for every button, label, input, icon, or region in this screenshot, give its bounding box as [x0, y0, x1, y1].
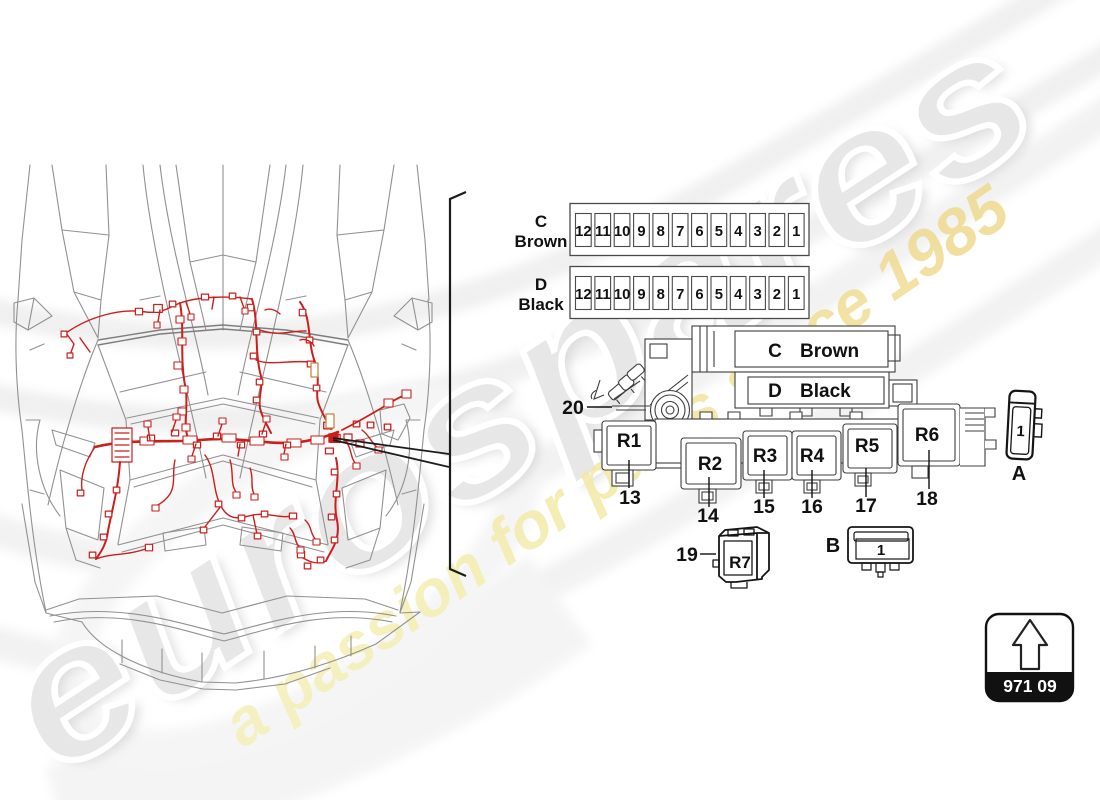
svg-text:3: 3 — [753, 224, 761, 240]
svg-text:971 09: 971 09 — [1003, 676, 1057, 696]
svg-text:6: 6 — [695, 224, 703, 240]
svg-text:16: 16 — [801, 496, 823, 518]
svg-text:5: 5 — [715, 224, 723, 240]
svg-text:11: 11 — [595, 224, 611, 240]
svg-text:9: 9 — [637, 287, 645, 303]
svg-text:8: 8 — [657, 224, 665, 240]
svg-text:1: 1 — [792, 287, 800, 303]
svg-text:R5: R5 — [855, 436, 880, 457]
svg-text:11: 11 — [595, 287, 611, 303]
svg-text:R2: R2 — [698, 454, 722, 475]
svg-text:C: C — [535, 212, 547, 231]
svg-text:R4: R4 — [800, 446, 825, 467]
svg-text:3: 3 — [753, 287, 761, 303]
svg-text:20: 20 — [562, 397, 584, 419]
svg-text:R1: R1 — [617, 431, 642, 452]
svg-text:1: 1 — [877, 542, 885, 559]
svg-text:A: A — [1012, 463, 1026, 485]
svg-text:1: 1 — [792, 224, 800, 240]
svg-text:10: 10 — [614, 224, 630, 240]
svg-text:5: 5 — [715, 287, 723, 303]
svg-text:10: 10 — [614, 287, 630, 303]
svg-text:7: 7 — [676, 224, 684, 240]
svg-text:D: D — [535, 275, 547, 294]
svg-text:6: 6 — [695, 287, 703, 303]
svg-text:4: 4 — [734, 224, 743, 240]
svg-text:13: 13 — [619, 487, 641, 509]
svg-text:Brown: Brown — [800, 341, 859, 362]
svg-text:8: 8 — [657, 287, 665, 303]
svg-text:B: B — [826, 535, 840, 557]
svg-text:15: 15 — [753, 496, 775, 518]
svg-text:9: 9 — [637, 224, 645, 240]
svg-text:C: C — [768, 341, 782, 362]
svg-text:R3: R3 — [753, 446, 777, 467]
svg-text:14: 14 — [697, 505, 719, 527]
svg-text:12: 12 — [575, 224, 591, 240]
svg-text:7: 7 — [676, 287, 684, 303]
svg-text:18: 18 — [916, 488, 938, 510]
svg-text:4: 4 — [734, 287, 743, 303]
svg-text:2: 2 — [773, 287, 781, 303]
svg-text:D: D — [768, 381, 782, 402]
svg-text:Black: Black — [800, 381, 851, 402]
svg-text:1: 1 — [1016, 423, 1025, 440]
svg-text:Black: Black — [518, 295, 564, 314]
svg-text:R7: R7 — [729, 553, 751, 572]
svg-text:19: 19 — [676, 544, 698, 566]
svg-text:2: 2 — [773, 224, 781, 240]
svg-text:12: 12 — [575, 287, 591, 303]
svg-text:Brown: Brown — [515, 232, 568, 251]
svg-text:17: 17 — [855, 495, 877, 517]
svg-text:R6: R6 — [915, 425, 939, 446]
